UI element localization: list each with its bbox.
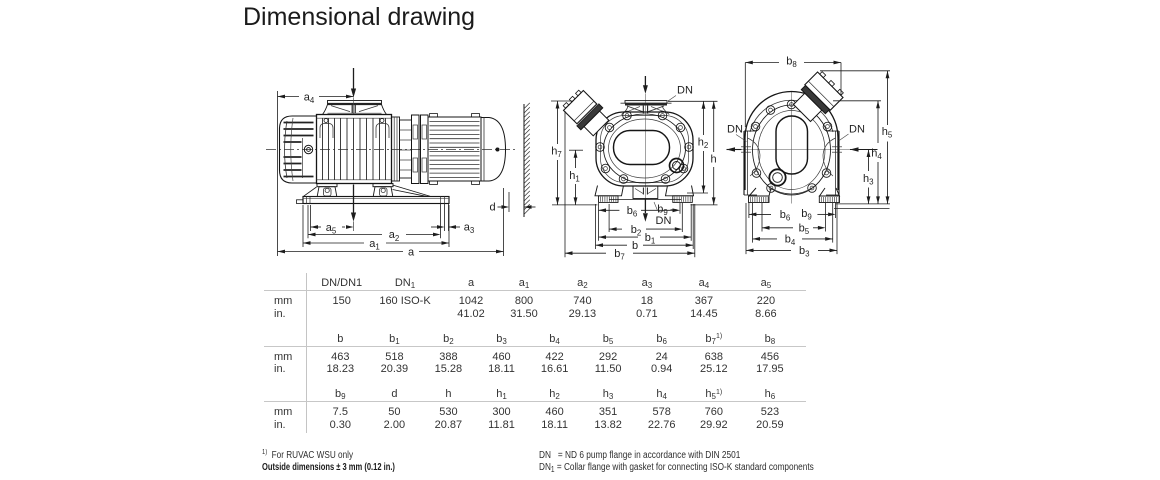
svg-text:b5: b5 bbox=[799, 223, 810, 237]
svg-text:a: a bbox=[408, 246, 415, 258]
svg-text:h1: h1 bbox=[569, 170, 580, 184]
svg-text:h4: h4 bbox=[871, 148, 882, 162]
svg-text:b7: b7 bbox=[614, 248, 625, 262]
svg-text:b8: b8 bbox=[786, 55, 797, 69]
svg-text:a2: a2 bbox=[389, 229, 400, 243]
svg-text:DN: DN bbox=[727, 124, 743, 136]
svg-text:a5: a5 bbox=[326, 222, 337, 236]
svg-text:b9: b9 bbox=[801, 208, 812, 222]
svg-text:h2: h2 bbox=[698, 137, 709, 151]
svg-text:DN: DN bbox=[656, 215, 672, 227]
svg-text:a4: a4 bbox=[304, 91, 315, 105]
svg-text:b6: b6 bbox=[780, 209, 791, 223]
svg-text:h7: h7 bbox=[551, 145, 562, 159]
svg-text:b1: b1 bbox=[645, 232, 656, 246]
svg-text:a1: a1 bbox=[369, 238, 380, 252]
svg-text:h5: h5 bbox=[882, 126, 893, 140]
svg-text:b3: b3 bbox=[799, 245, 810, 259]
svg-text:b4: b4 bbox=[785, 234, 796, 248]
svg-text:b6: b6 bbox=[627, 205, 638, 219]
svg-text:h: h bbox=[710, 154, 716, 166]
svg-text:h3: h3 bbox=[863, 173, 874, 187]
svg-text:DN: DN bbox=[677, 84, 693, 96]
svg-text:d: d bbox=[489, 202, 495, 214]
svg-text:a3: a3 bbox=[464, 222, 475, 236]
svg-text:b2: b2 bbox=[631, 224, 642, 238]
svg-text:DN: DN bbox=[849, 124, 865, 136]
svg-text:b: b bbox=[632, 240, 638, 252]
